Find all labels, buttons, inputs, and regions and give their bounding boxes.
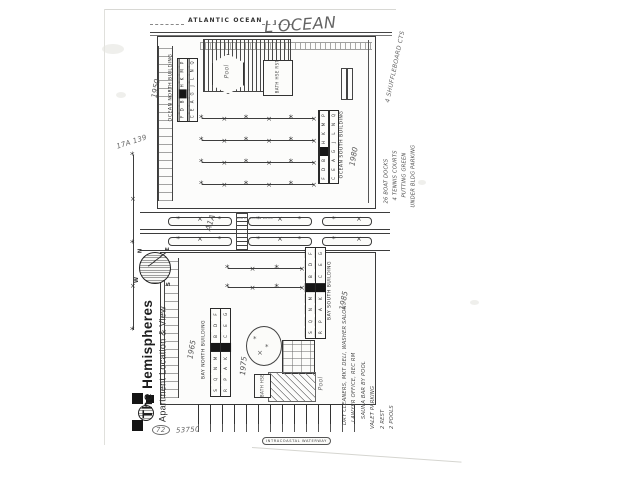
ocean-pool-label: Pool <box>224 59 231 85</box>
unit-letter: E <box>329 165 338 174</box>
compass-e: E <box>165 247 171 251</box>
compass-w: W <box>134 277 140 283</box>
page-title: The Hemispheres <box>140 284 158 434</box>
unit-letter: K <box>315 294 326 303</box>
ocean-north-building-row2: CEAGJLNQ <box>187 58 198 122</box>
unit-letter: M <box>179 66 187 75</box>
median-island <box>168 237 232 246</box>
palm-row <box>202 140 314 142</box>
unit-letter: E <box>220 321 231 330</box>
unit-letter: Q <box>189 58 197 67</box>
median-island <box>168 217 232 226</box>
unit-letter: A <box>329 156 338 165</box>
unit-letter: Q <box>329 111 338 120</box>
road-edge <box>140 233 390 234</box>
palm-row <box>228 268 302 270</box>
unit-letter: R <box>315 328 326 337</box>
unit-letter: F <box>319 174 328 183</box>
unit-letter: N <box>329 120 338 129</box>
unit-letter: P <box>319 111 328 120</box>
unit-letter: H <box>319 138 328 147</box>
amenity-note-line: UNDER BLDG PARKING <box>409 108 418 208</box>
palm-row <box>202 118 314 120</box>
unit-letter: G <box>329 147 338 156</box>
intracoastal-label: INTRACOASTAL WATERWAY <box>262 437 331 445</box>
unit-letter: P <box>220 375 231 384</box>
median-island <box>322 237 372 246</box>
compass-n: N <box>137 249 143 254</box>
scan-smudge <box>470 300 479 305</box>
unit-letter: J <box>329 138 338 147</box>
amenities-note-right: 26 BOAT DOCKS4 TENNIS COURTSPUTTING GREE… <box>383 108 410 208</box>
page-subtitle: Apartment Location & View <box>158 292 170 437</box>
putting-green: **× <box>246 326 282 366</box>
amenity-note-line: LAWYER OFFICE, REC RM <box>350 291 359 429</box>
scanned-map-page: ATLANTIC OCEAN L'OCEAN 4 SHUFFLEBOARD CT… <box>0 0 640 480</box>
scan-smudge <box>418 180 426 185</box>
ocean-south-building-row2: CEAGJLNQ <box>328 110 339 184</box>
amenity-note-line: 2 REST <box>379 291 388 429</box>
unit-letter: C <box>329 174 338 183</box>
unit-letter: A <box>315 305 326 314</box>
parking-stalls <box>158 46 173 201</box>
unit-letter: G <box>189 89 197 98</box>
intracoastal-label-box: INTRACOASTAL WATERWAY <box>262 427 331 446</box>
unit-letter: C <box>220 332 231 341</box>
unit-letter: A <box>189 97 197 106</box>
boat-docks <box>198 404 360 425</box>
street-palm-column <box>133 155 135 330</box>
unit-letter: A <box>220 364 231 373</box>
amenity-note-line: 4 TENNIS COURTS <box>391 108 400 208</box>
unit-letter: G <box>315 249 326 258</box>
scan-smudge <box>102 44 124 54</box>
road-name-label: SOUTH OCEAN DRIVE <box>236 216 273 220</box>
road-edge <box>140 250 390 251</box>
scan-crease <box>252 447 462 463</box>
palm-row <box>202 184 314 186</box>
page-edge <box>104 9 105 445</box>
unit-letter: G <box>220 310 231 319</box>
plat-note: 17A 139 <box>116 133 148 150</box>
amenity-note-line: VALET PARKING <box>369 291 378 429</box>
unit-letter: M <box>319 120 328 129</box>
bay-south-building-row2: RPAKCEG <box>315 247 326 339</box>
amenities-note-bottom: DRY CLEANERS, MKT DELI, WASHER SALONLAWY… <box>341 291 397 429</box>
page-edge <box>104 9 396 10</box>
amenity-note-line: SAUNA BAR BY POOL <box>360 291 369 429</box>
compass-s: S <box>166 282 172 286</box>
bay-pool-label: Pool <box>318 371 325 397</box>
unit-letter: C <box>315 272 326 281</box>
road-edge <box>140 229 390 230</box>
bay-north-building-label: BAY NORTH BUILDING <box>202 318 207 382</box>
median-island <box>322 217 372 226</box>
unit-letter: B <box>319 156 328 165</box>
pool-deck-hatch <box>268 372 316 402</box>
shuffleboard-note: 4 SHUFFLEBOARD CTS <box>384 14 410 103</box>
unit-letter: R <box>220 386 231 395</box>
palm-row <box>202 162 314 164</box>
palm-row <box>228 287 302 289</box>
ocean-south-building-label: OCEAN SOUTH BUILDING <box>340 109 345 181</box>
unit-letter: L <box>329 129 338 138</box>
bay-bath-house-label: BATH HSE <box>260 366 265 406</box>
bay-north-building-row2: RPAKCEG <box>220 308 231 397</box>
unit-letter: E <box>315 260 326 269</box>
median-island <box>248 237 312 246</box>
unit-letter: N <box>189 66 197 75</box>
unit-letter <box>315 283 326 292</box>
unit-letter: K <box>319 129 328 138</box>
unit-letter <box>220 343 231 352</box>
amenity-note-line: PUTTING GREEN <box>400 108 409 208</box>
atlantic-ocean-label: ATLANTIC OCEAN <box>188 17 263 24</box>
dock-note-number: 53750 <box>176 425 200 434</box>
compass-rose <box>139 252 171 284</box>
unit-letter: P <box>315 317 326 326</box>
unit-letter: K <box>220 353 231 362</box>
amenity-note-line: 26 BOAT DOCKS <box>383 108 392 208</box>
bay-pool <box>282 340 315 374</box>
bay-pool-year-note: 1975 <box>238 356 249 376</box>
shuffleboard-court <box>347 68 353 100</box>
amenity-note-line: DRY CLEANERS, MKT DELI, WASHER SALON <box>341 291 350 429</box>
bay-south-building-label: BAY SOUTH BUILDING <box>328 258 333 324</box>
ocean-bath-house-label: BATH HSE RST <box>275 53 280 101</box>
unit-letter: P <box>179 58 187 67</box>
unit-letter: D <box>319 165 328 174</box>
unit-letter <box>319 147 328 156</box>
unit-letter <box>179 89 187 98</box>
scan-smudge <box>116 92 126 98</box>
perimeter-drive <box>366 40 369 203</box>
unit-letter: B <box>179 97 187 106</box>
road-edge <box>140 212 390 213</box>
amenity-note-line: 2 POOLS <box>388 291 397 429</box>
